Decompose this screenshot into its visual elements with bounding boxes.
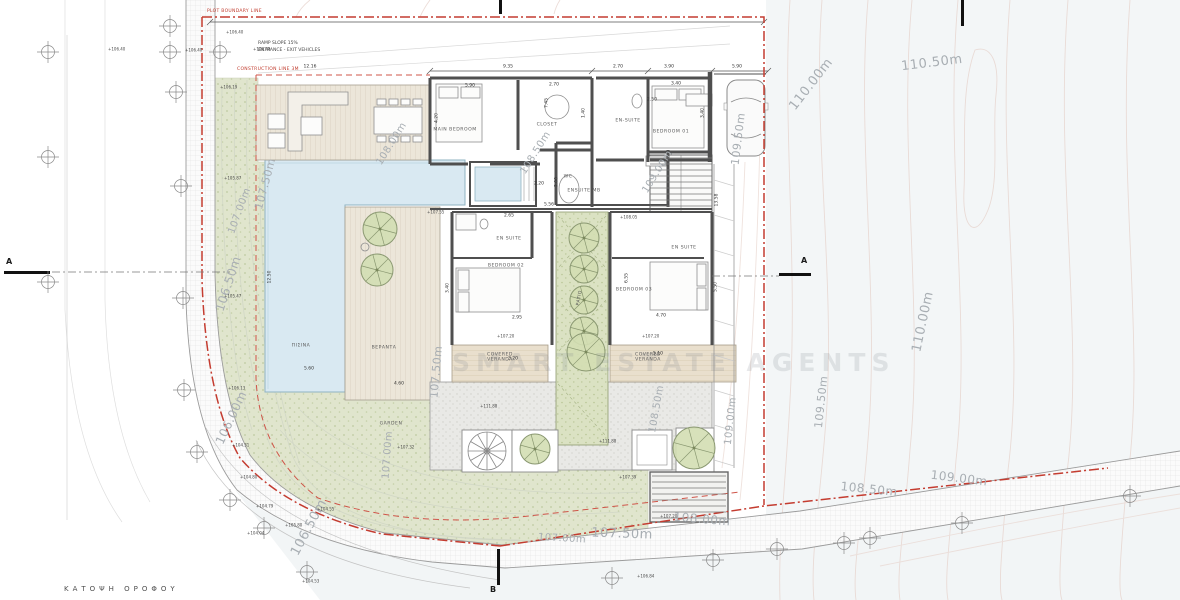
plan-drawing	[0, 0, 1180, 600]
car	[724, 80, 768, 156]
jacuzzi	[470, 162, 536, 206]
side-yard-ramp	[714, 164, 734, 468]
site-plan-canvas: PLOT BOUNDARY LINE CONSTRUCTION LINE 3M …	[0, 0, 1180, 600]
ramp-guides	[258, 26, 730, 73]
exterior-staircase	[650, 472, 728, 522]
spiral-staircase	[468, 432, 506, 470]
